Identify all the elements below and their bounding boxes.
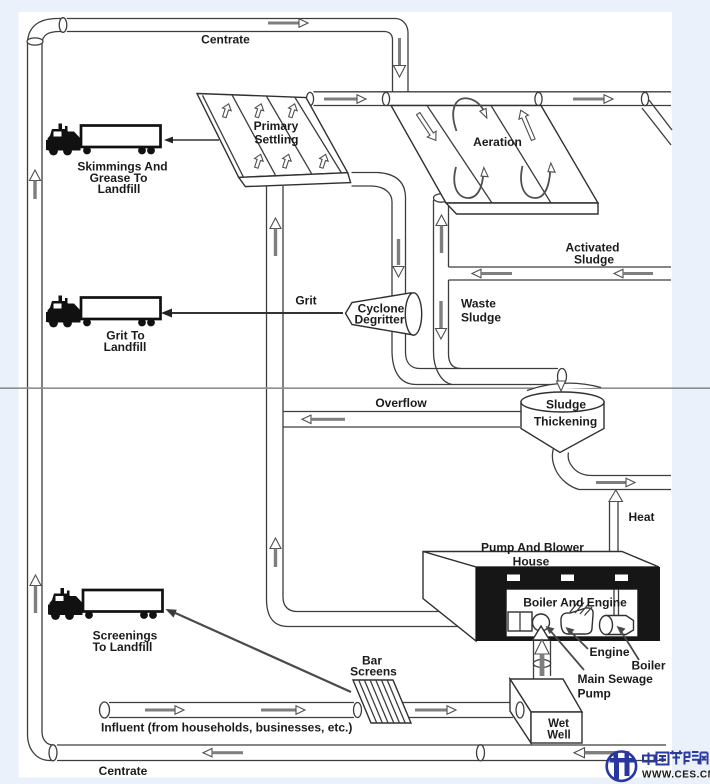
svg-text:Grit: Grit [295,294,316,308]
svg-text:Heat: Heat [628,510,654,524]
svg-text:Waste: Waste [461,297,496,311]
svg-text:Main Sewage: Main Sewage [578,672,654,686]
svg-text:Sludge: Sludge [546,398,586,412]
svg-text:Well: Well [547,730,570,742]
svg-text:Boiler: Boiler [631,659,665,673]
svg-text:Degritter: Degritter [354,313,404,327]
svg-text:Landfill: Landfill [104,340,147,354]
svg-text:To Landfill: To Landfill [93,640,153,654]
svg-text:Primary: Primary [254,119,299,133]
svg-text:Boiler And Engine: Boiler And Engine [523,596,627,610]
svg-text:Sludge: Sludge [574,253,614,267]
svg-text:Engine: Engine [589,645,629,659]
svg-text:Screens: Screens [350,665,397,679]
svg-text:Thickening: Thickening [534,415,597,429]
svg-text:WWW.CES.CN: WWW.CES.CN [642,770,710,781]
svg-text:Overflow: Overflow [375,396,427,410]
svg-text:Pump: Pump [578,687,611,701]
svg-text:Centrate: Centrate [99,764,148,778]
svg-text:Landfill: Landfill [98,182,141,196]
svg-text:Influent (from households, bus: Influent (from households, businesses, e… [101,721,352,735]
svg-text:Sludge: Sludge [461,311,501,325]
svg-text:Centrate: Centrate [201,33,250,47]
svg-text:Pump And Blower: Pump And Blower [481,541,584,555]
svg-text:Settling: Settling [255,133,299,147]
svg-text:House: House [513,555,550,569]
svg-text:Wet: Wet [548,718,569,730]
svg-text:Aeration: Aeration [473,135,522,149]
